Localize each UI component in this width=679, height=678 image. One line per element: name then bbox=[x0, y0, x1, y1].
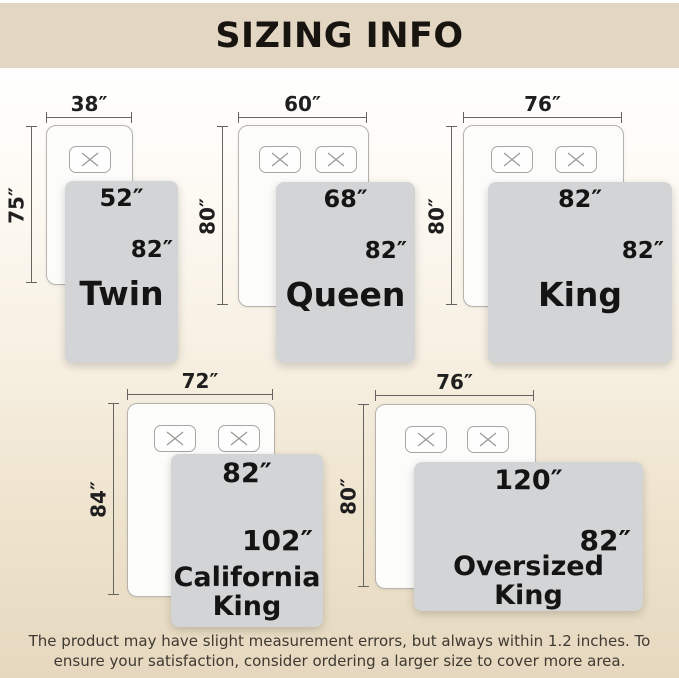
height-measure-line bbox=[451, 126, 452, 305]
page-title: SIZING INFO bbox=[215, 16, 463, 56]
width-measure: 76″ bbox=[463, 94, 622, 118]
width-measure-label: 60″ bbox=[238, 94, 367, 115]
height-measure-label: 84″ bbox=[89, 470, 110, 530]
height-measure: 75″ bbox=[31, 126, 32, 283]
pillow-icon bbox=[259, 146, 301, 173]
pillow-icon bbox=[555, 146, 597, 173]
height-measure: 80″ bbox=[451, 126, 452, 305]
height-measure-label: 80″ bbox=[427, 186, 448, 246]
blanket-length-label: 82″ bbox=[365, 238, 407, 264]
blanket-size-name: Queen bbox=[276, 277, 415, 312]
width-measure-label: 76″ bbox=[463, 94, 622, 115]
width-measure: 60″ bbox=[238, 94, 367, 118]
blanket-size-name: King bbox=[488, 277, 672, 312]
blanket: 120″ 82″ Oversized King bbox=[414, 462, 643, 611]
height-measure-line bbox=[363, 404, 364, 587]
blanket-width-label: 82″ bbox=[171, 458, 323, 489]
blanket-length-label: 102″ bbox=[242, 524, 313, 557]
pillow-icon bbox=[467, 426, 509, 453]
height-measure: 80″ bbox=[363, 404, 364, 587]
height-measure-label: 80″ bbox=[198, 186, 219, 246]
blanket-size-name: Oversized King bbox=[414, 553, 643, 611]
blanket-size-name: California King bbox=[171, 564, 323, 622]
blanket-width-label: 52″ bbox=[65, 184, 178, 212]
footer-note: The product may have slight measurement … bbox=[0, 631, 679, 672]
width-measure-line bbox=[238, 117, 367, 118]
pillow-icon bbox=[218, 425, 260, 452]
width-measure: 72″ bbox=[127, 371, 273, 395]
sizing-info-page: SIZING INFO 38″ 75″ 52″ 82″ Twin 60″ bbox=[0, 0, 679, 678]
width-measure-line bbox=[127, 394, 273, 395]
width-measure: 38″ bbox=[46, 94, 132, 118]
pillow-icon bbox=[491, 146, 533, 173]
width-measure-label: 38″ bbox=[46, 94, 132, 115]
blanket-width-label: 68″ bbox=[276, 185, 415, 213]
width-measure-label: 72″ bbox=[127, 371, 273, 392]
pillow-icon bbox=[405, 426, 447, 453]
header-band: SIZING INFO bbox=[0, 3, 679, 68]
blanket: 52″ 82″ Twin bbox=[65, 181, 178, 363]
height-measure-label: 75″ bbox=[7, 175, 28, 235]
width-measure-line bbox=[375, 395, 534, 396]
blanket-width-label: 120″ bbox=[414, 465, 643, 496]
pillow-icon bbox=[315, 146, 357, 173]
height-measure-label: 80″ bbox=[339, 466, 360, 526]
width-measure-label: 76″ bbox=[375, 372, 534, 393]
height-measure: 84″ bbox=[113, 403, 114, 595]
width-measure-line bbox=[46, 117, 132, 118]
width-measure: 76″ bbox=[375, 372, 534, 396]
height-measure-line bbox=[31, 126, 32, 283]
blanket: 82″ 82″ King bbox=[488, 182, 672, 363]
height-measure: 80″ bbox=[222, 126, 223, 305]
height-measure-line bbox=[113, 403, 114, 595]
blanket-length-label: 82″ bbox=[131, 237, 173, 263]
blanket: 68″ 82″ Queen bbox=[276, 182, 415, 363]
footer-note-text: The product may have slight measurement … bbox=[27, 631, 652, 672]
blanket: 82″ 102″ California King bbox=[171, 454, 323, 627]
pillow-icon bbox=[154, 425, 196, 452]
pillow-icon bbox=[69, 146, 111, 173]
width-measure-line bbox=[463, 117, 622, 118]
blanket-size-name: Twin bbox=[65, 276, 178, 311]
height-measure-line bbox=[222, 126, 223, 305]
blanket-length-label: 82″ bbox=[622, 238, 664, 264]
blanket-width-label: 82″ bbox=[488, 185, 672, 213]
